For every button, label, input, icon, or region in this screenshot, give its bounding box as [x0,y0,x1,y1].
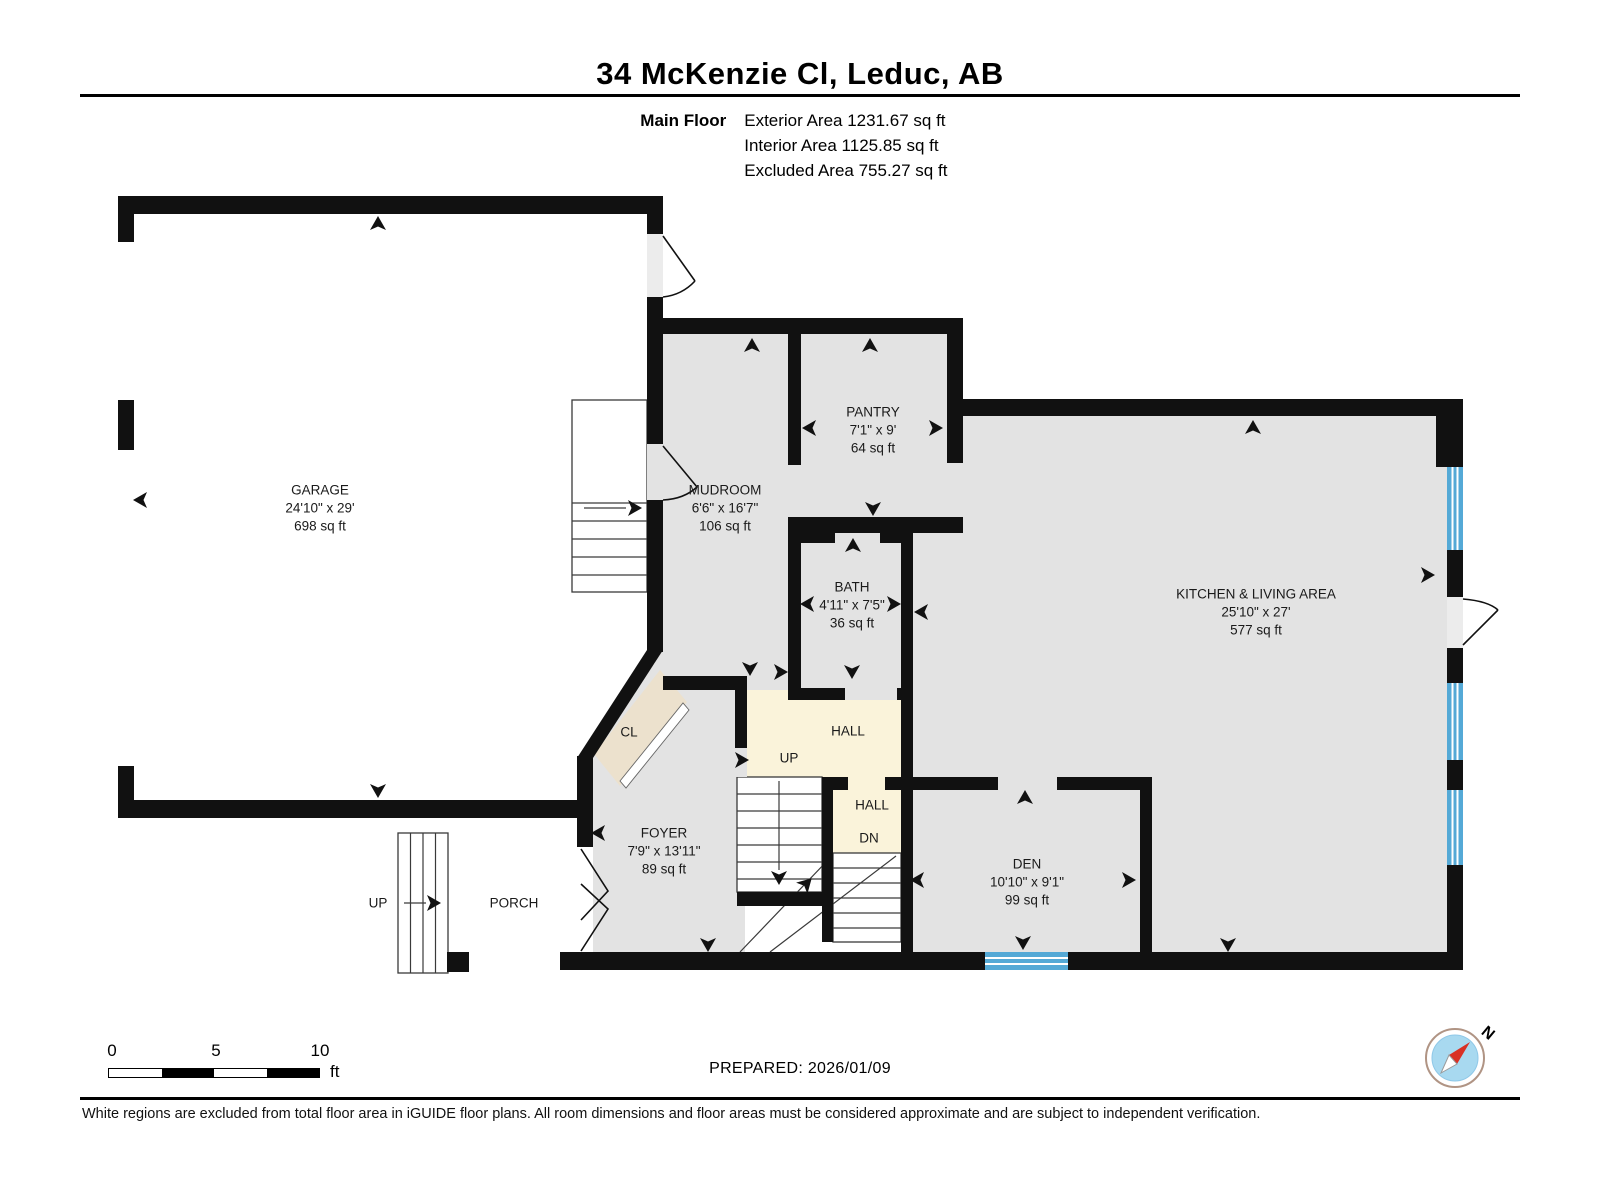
plan-label-up-main-stairs: UP [780,751,799,766]
room-name: DEN [990,855,1064,873]
footer-divider [80,1097,1520,1100]
plan-label-hall-lower: HALL [855,798,889,813]
room-label-garage: GARAGE 24'10" x 29' 698 sq ft [285,481,354,534]
room-dimensions: 4'11" x 7'5" [819,596,885,614]
room-name: GARAGE [285,481,354,499]
room-label-den: DEN 10'10" x 9'1" 99 sq ft [990,855,1064,908]
room-label-kitchen-living: KITCHEN & LIVING AREA 25'10" x 27' 577 s… [1176,585,1336,638]
room-name: MUDROOM [689,481,762,499]
room-labels-layer: GARAGE 24'10" x 29' 698 sq ft MUDROOM 6'… [0,0,1600,1200]
floor-plan: GARAGE 24'10" x 29' 698 sq ft MUDROOM 6'… [0,0,1600,1200]
room-dimensions: 6'6" x 16'7" [689,499,762,517]
prepared-date: PREPARED: 2026/01/09 [0,1060,1600,1078]
scale-tick-5: 5 [211,1041,220,1061]
compass-icon: N [1415,1016,1505,1098]
room-dimensions: 25'10" x 27' [1176,603,1336,621]
scale-tick-10: 10 [311,1041,330,1061]
room-dimensions: 10'10" x 9'1" [990,873,1064,891]
room-dimensions: 24'10" x 29' [285,499,354,517]
room-area: 577 sq ft [1176,621,1336,639]
floor-plan-page: 34 McKenzie Cl, Leduc, AB Main Floor Ext… [0,0,1600,1200]
room-area: 106 sq ft [689,517,762,535]
room-name: PANTRY [846,403,900,421]
room-label-mudroom: MUDROOM 6'6" x 16'7" 106 sq ft [689,481,762,534]
disclaimer-text: White regions are excluded from total fl… [82,1106,1540,1122]
plan-label-up-porch: UP [369,896,388,911]
room-dimensions: 7'9" x 13'11" [627,842,700,860]
room-area: 64 sq ft [846,439,900,457]
plan-label-closet: CL [620,725,637,740]
room-area: 89 sq ft [627,860,700,878]
room-label-pantry: PANTRY 7'1" x 9' 64 sq ft [846,403,900,456]
plan-label-dn-stairs: DN [859,831,879,846]
scale-tick-0: 0 [107,1041,116,1061]
room-area: 36 sq ft [819,614,885,632]
plan-label-hall-upper: HALL [831,724,865,739]
compass-north-label: N [1478,1023,1498,1043]
room-label-foyer: FOYER 7'9" x 13'11" 89 sq ft [627,824,700,877]
plan-label-porch: PORCH [490,896,539,911]
room-label-bath: BATH 4'11" x 7'5" 36 sq ft [819,578,885,631]
room-dimensions: 7'1" x 9' [846,421,900,439]
room-name: BATH [819,578,885,596]
room-area: 99 sq ft [990,891,1064,909]
room-name: KITCHEN & LIVING AREA [1176,585,1336,603]
room-name: FOYER [627,824,700,842]
room-area: 698 sq ft [285,517,354,535]
